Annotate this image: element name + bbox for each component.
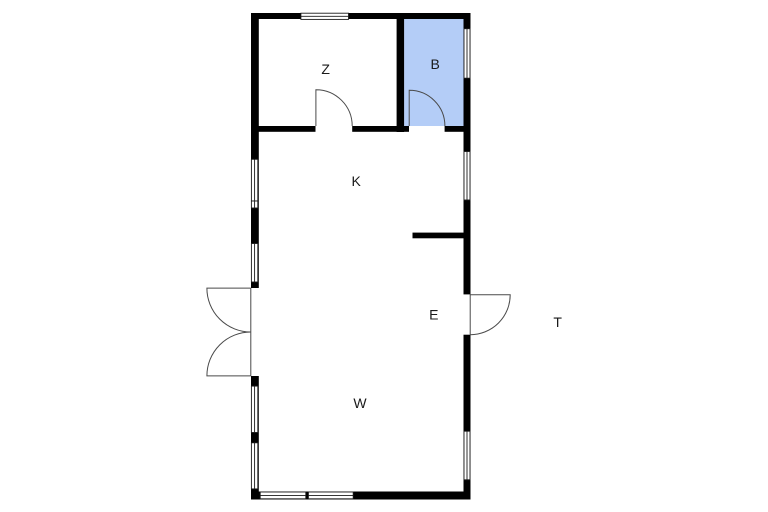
svg-text:Z: Z — [321, 61, 330, 77]
svg-text:E: E — [429, 306, 438, 322]
svg-text:K: K — [352, 173, 362, 189]
svg-text:W: W — [353, 395, 367, 411]
svg-text:T: T — [553, 314, 562, 330]
svg-text:B: B — [431, 56, 440, 72]
